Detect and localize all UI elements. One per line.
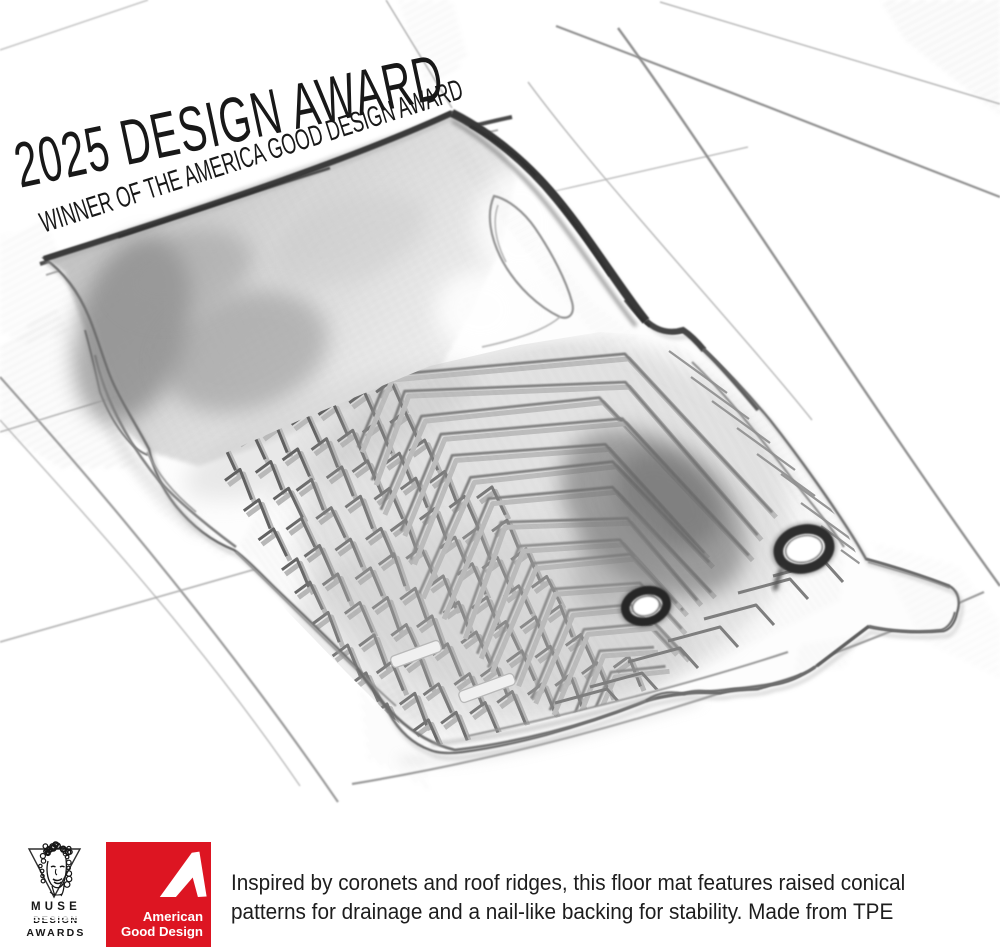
svg-text:Good Design: Good Design — [121, 924, 203, 939]
svg-text:American: American — [143, 909, 203, 924]
svg-text:MUSE: MUSE — [31, 901, 81, 913]
svg-text:AWARDS: AWARDS — [26, 927, 85, 939]
